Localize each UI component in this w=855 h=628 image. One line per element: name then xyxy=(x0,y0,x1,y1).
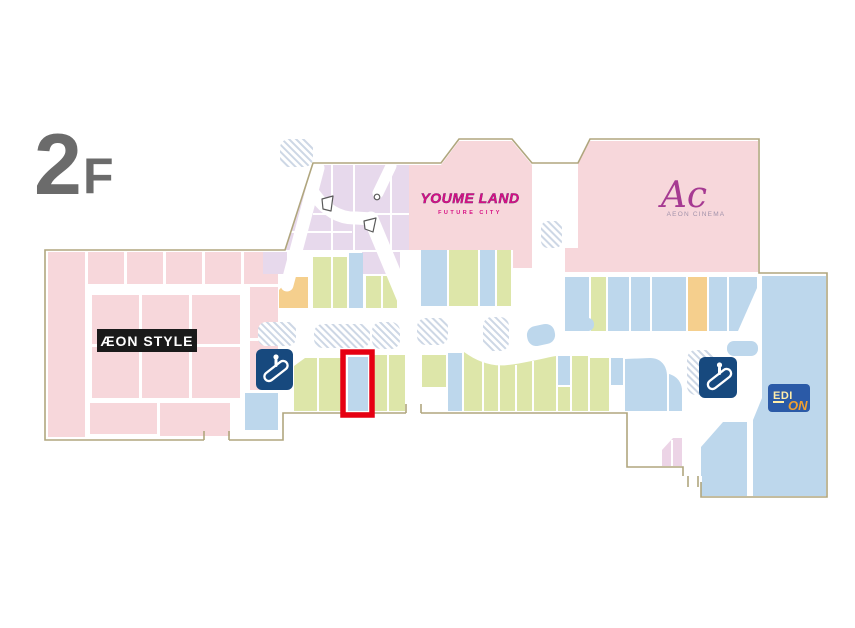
aeon-cinema-logo-abbr: Ac xyxy=(658,175,707,216)
store-block xyxy=(513,250,532,268)
store-block xyxy=(88,252,124,284)
hatched-area xyxy=(258,322,296,346)
hatched-area xyxy=(541,221,562,248)
entrance-gap xyxy=(406,410,421,416)
store-block xyxy=(709,277,727,331)
bench-blob xyxy=(727,341,758,356)
store-block xyxy=(389,355,405,411)
store-block xyxy=(631,277,650,331)
floor-label: 2 F xyxy=(34,117,114,213)
store-block xyxy=(497,250,511,306)
edion-logo: EDI ON xyxy=(768,384,810,413)
store-block xyxy=(48,252,85,437)
aeon-style-logo-text: ÆON STYLE xyxy=(100,333,193,349)
store-block xyxy=(192,347,240,398)
store-block xyxy=(160,403,230,436)
bench-blob xyxy=(578,318,594,331)
store-block xyxy=(590,358,609,411)
store-block xyxy=(313,257,331,308)
store-block xyxy=(90,403,157,434)
store-block xyxy=(480,250,495,306)
store-block xyxy=(611,358,623,385)
store-block xyxy=(422,355,446,387)
store-block xyxy=(608,277,629,331)
hatched-area xyxy=(372,322,400,349)
floor-number: 2 xyxy=(34,117,82,213)
escalator-icon xyxy=(699,357,737,398)
store-block xyxy=(333,257,347,308)
store-block xyxy=(449,250,478,306)
entrance-gap xyxy=(204,437,229,443)
edion-logo-underline xyxy=(773,401,784,403)
store-block xyxy=(92,347,139,398)
highlighted-store-block xyxy=(348,357,368,411)
store-block xyxy=(294,358,317,411)
mall-floor-map-2f: 2 F ÆON STYLE YOUME LAND FUTURE CITY Ac … xyxy=(0,0,855,628)
youme-land-logo-subtitle: FUTURE CITY xyxy=(438,210,502,216)
store-block xyxy=(192,295,240,344)
hatched-area xyxy=(314,324,370,348)
store-block xyxy=(245,393,278,430)
hatched-area xyxy=(417,318,448,345)
store-block xyxy=(366,276,381,308)
store-block xyxy=(319,358,341,411)
store-block xyxy=(572,356,588,411)
store-block xyxy=(142,347,189,398)
store-block xyxy=(349,253,363,308)
edion-logo-text-bottom: ON xyxy=(788,398,808,413)
store-block xyxy=(421,250,447,306)
youme-land-logo-text: YOUME LAND xyxy=(420,190,519,206)
store-block xyxy=(625,358,667,411)
store-block xyxy=(652,277,686,331)
store-block xyxy=(263,252,287,274)
hatched-area xyxy=(483,317,509,351)
aeon-cinema-logo-name: AEON CINEMA xyxy=(667,211,726,218)
store-block xyxy=(127,252,163,284)
aeon-style-logo: ÆON STYLE xyxy=(97,329,197,352)
floor-suffix: F xyxy=(83,148,114,204)
column-void xyxy=(374,194,380,200)
hatched-area xyxy=(280,139,313,167)
store-block xyxy=(558,387,570,411)
floor-map: 2 F ÆON STYLE YOUME LAND FUTURE CITY Ac … xyxy=(0,0,855,628)
store-block xyxy=(558,356,570,385)
store-block xyxy=(448,353,462,411)
store-block xyxy=(166,252,202,284)
stairwell-void xyxy=(322,196,333,211)
store-block xyxy=(688,277,707,331)
entrance-gap xyxy=(682,476,702,482)
store-block xyxy=(205,252,241,284)
escalator-icon xyxy=(256,349,293,390)
